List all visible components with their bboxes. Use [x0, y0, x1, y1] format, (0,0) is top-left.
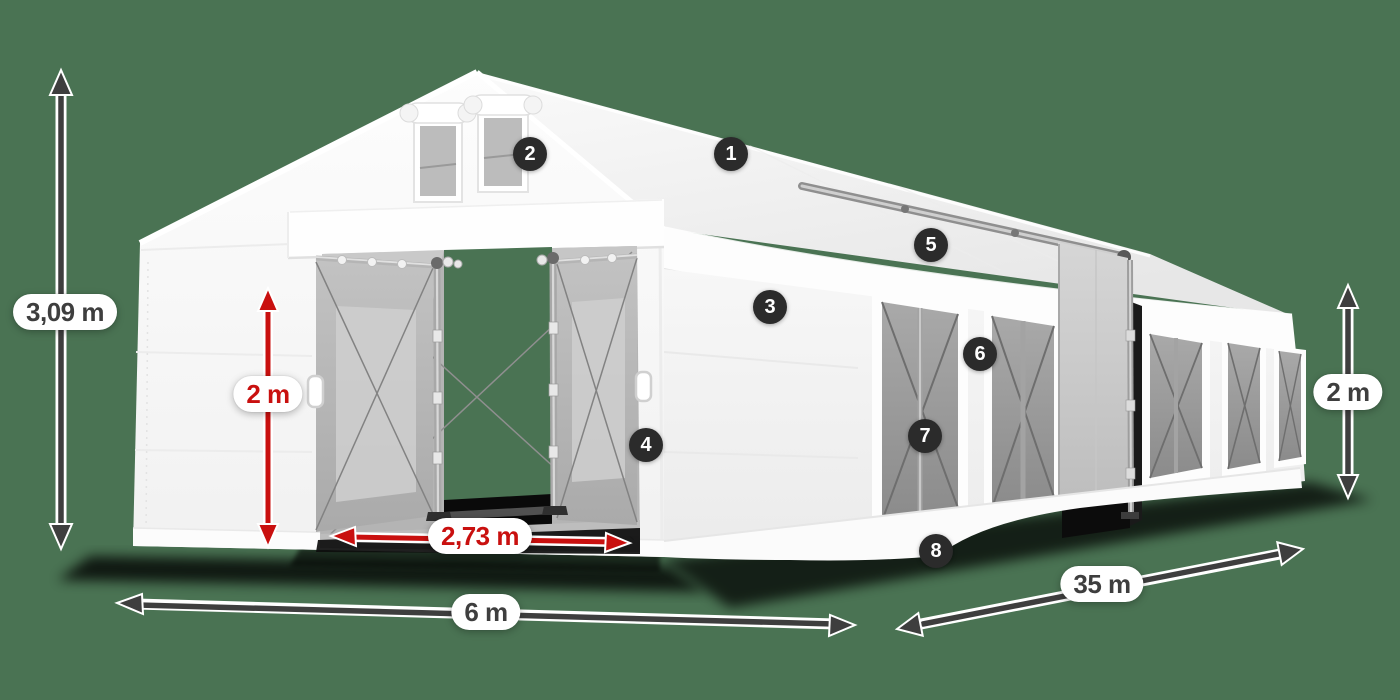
- label-entrance-height: 2 m: [233, 376, 302, 412]
- side-window-5: [1274, 346, 1306, 468]
- callout-badge-8: 8: [919, 534, 953, 568]
- callout-badge-4: 4: [629, 428, 663, 462]
- label-front-width: 6 m: [451, 594, 520, 630]
- tent-illustration: [0, 0, 1400, 700]
- side-window-1: [872, 292, 968, 533]
- side-window-4: [1222, 336, 1266, 478]
- label-side-length: 35 m: [1060, 566, 1143, 602]
- label-side-wall-height: 2 m: [1313, 374, 1382, 410]
- callout-badge-2: 2: [513, 137, 547, 171]
- callout-badge-3: 3: [753, 290, 787, 324]
- front-door-right: [537, 252, 637, 525]
- label-entrance-width: 2,73 m: [428, 518, 532, 554]
- side-window-3: [1142, 326, 1210, 488]
- front-entrance: [308, 246, 651, 554]
- label-total-height: 3,09 m: [13, 294, 117, 330]
- callout-badge-5: 5: [914, 228, 948, 262]
- callout-badge-1: 1: [714, 137, 748, 171]
- callout-badge-7: 7: [908, 419, 942, 453]
- door-strap-right: [636, 372, 651, 401]
- callout-badge-6: 6: [963, 337, 997, 371]
- tent-dimension-diagram: 3,09 m 2 m 2,73 m 6 m 35 m 2 m 1 2 3 4 5…: [0, 0, 1400, 700]
- side-window-2: [984, 308, 1062, 517]
- door-strap-left: [308, 376, 323, 407]
- front-door-left: [316, 256, 462, 533]
